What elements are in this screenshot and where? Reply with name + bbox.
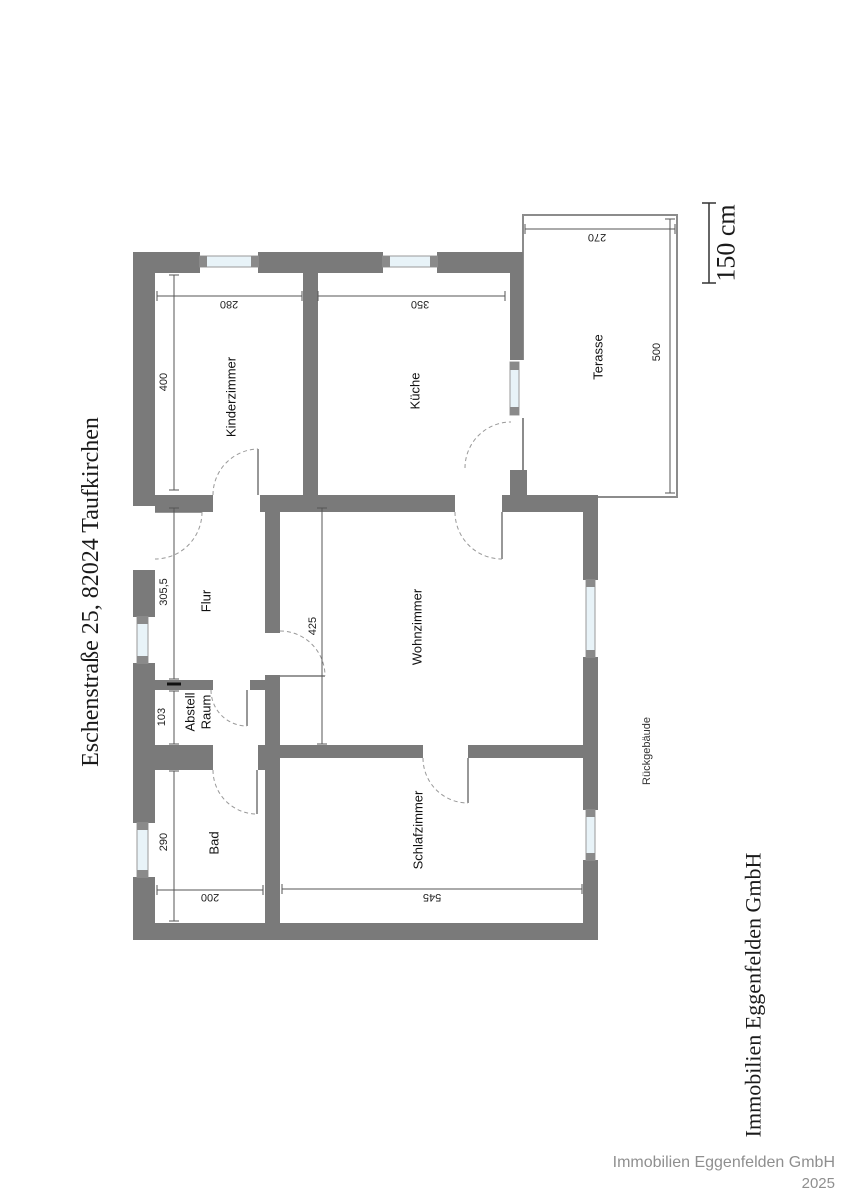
wall-top bbox=[258, 252, 383, 273]
wall-right bbox=[583, 860, 598, 923]
door-arc-flur-wohnzimmer bbox=[280, 631, 325, 676]
address-title: Eschenstraße 25, 82024 Taufkirchen bbox=[78, 417, 104, 767]
window-kinderzimmer bbox=[200, 252, 258, 273]
terrace-door-glazing bbox=[508, 360, 524, 418]
door-arc-entrance bbox=[155, 512, 202, 559]
window-wohnzimmer bbox=[583, 580, 598, 657]
footer-year: 2025 bbox=[515, 1174, 835, 1194]
wall-bottom bbox=[133, 923, 598, 940]
scale-bar: 150 cm bbox=[702, 203, 741, 283]
dim-bad-width: 200 bbox=[201, 891, 219, 903]
wall-flur-wohnzimmer bbox=[265, 512, 280, 633]
rear-building-label: Rückgebäude bbox=[641, 717, 653, 785]
footer-company: Immobilien Eggenfelden GmbH bbox=[515, 1152, 835, 1174]
wall-kitchen-right bbox=[510, 273, 523, 360]
dim-bad-depth: 290 bbox=[158, 833, 170, 851]
wall-mid bbox=[260, 495, 455, 512]
wall-left bbox=[133, 570, 155, 617]
door-arc-kueche-terrasse bbox=[465, 422, 511, 468]
wall-wohnzimmer-schlafzimmer bbox=[280, 745, 423, 758]
room-label-terrasse: Terasse bbox=[591, 334, 606, 380]
dim-schlafzimmer-width: 545 bbox=[423, 891, 441, 903]
dim-kueche-width: 350 bbox=[411, 298, 429, 310]
door-arc-bad bbox=[213, 770, 257, 814]
window-schlafzimmer bbox=[583, 810, 598, 860]
wall-top bbox=[437, 252, 523, 273]
wall-flur-abstell bbox=[250, 680, 265, 690]
window-bad bbox=[133, 823, 155, 877]
wall-flur-abstell bbox=[155, 680, 213, 690]
floorplan-drawing: 150 cm Kinderzimmer Küche Terasse Flur W… bbox=[0, 0, 848, 1200]
wall-kinderzimmer-kueche bbox=[303, 273, 318, 495]
entrance-opening bbox=[133, 506, 155, 570]
room-label-schlafzimmer: Schlafzimmer bbox=[411, 790, 426, 869]
dim-kinderzimmer-depth: 400 bbox=[158, 373, 170, 391]
room-label-flur: Flur bbox=[199, 589, 214, 612]
dim-wohnzimmer-depth: 425 bbox=[307, 617, 319, 635]
wall-abstell-bad bbox=[133, 745, 213, 770]
door-arc-schlafzimmer bbox=[423, 758, 468, 803]
wall-left bbox=[133, 252, 155, 506]
wall-wohnzimmer-schlafzimmer bbox=[468, 745, 598, 758]
dim-flur-depth: 305,5 bbox=[158, 578, 170, 606]
door-arc-kinderzimmer bbox=[213, 449, 258, 495]
wall-kitchen-right-stub bbox=[510, 470, 527, 495]
wall-abstell-bad bbox=[258, 745, 280, 770]
room-label-kueche: Küche bbox=[408, 373, 423, 410]
room-label-kinderzimmer: Kinderzimmer bbox=[224, 356, 239, 437]
door-arc-abstellraum bbox=[211, 690, 247, 726]
door-arc-kueche-wohnzimmer bbox=[455, 512, 502, 559]
dim-abstellraum-depth: 103 bbox=[156, 708, 168, 726]
window-flur bbox=[133, 617, 155, 663]
company-side-title: Immobilien Eggenfelden GmbH bbox=[741, 853, 766, 1138]
wall-left bbox=[133, 663, 155, 823]
dim-terrasse-depth: 500 bbox=[651, 343, 663, 361]
window-kueche bbox=[383, 252, 437, 273]
room-label-wohnzimmer: Wohnzimmer bbox=[410, 588, 425, 665]
wall-flur-wohnzimmer bbox=[265, 675, 280, 923]
footer: Immobilien Eggenfelden GmbH 2025 bbox=[515, 1152, 835, 1194]
bad-door-opening bbox=[213, 745, 258, 770]
dim-terrasse-width: 270 bbox=[588, 231, 606, 243]
room-label-bad: Bad bbox=[207, 831, 222, 854]
wall-mid bbox=[502, 495, 598, 512]
dim-kinderzimmer-width: 280 bbox=[220, 298, 238, 310]
room-label-abstellraum-line2: Raum bbox=[199, 695, 214, 730]
floorplan-page: 150 cm Kinderzimmer Küche Terasse Flur W… bbox=[0, 0, 848, 1200]
scale-bar-label: 150 cm bbox=[712, 204, 741, 281]
room-label-abstellraum-line1: Abstell bbox=[183, 692, 198, 731]
wall-right bbox=[583, 657, 598, 810]
